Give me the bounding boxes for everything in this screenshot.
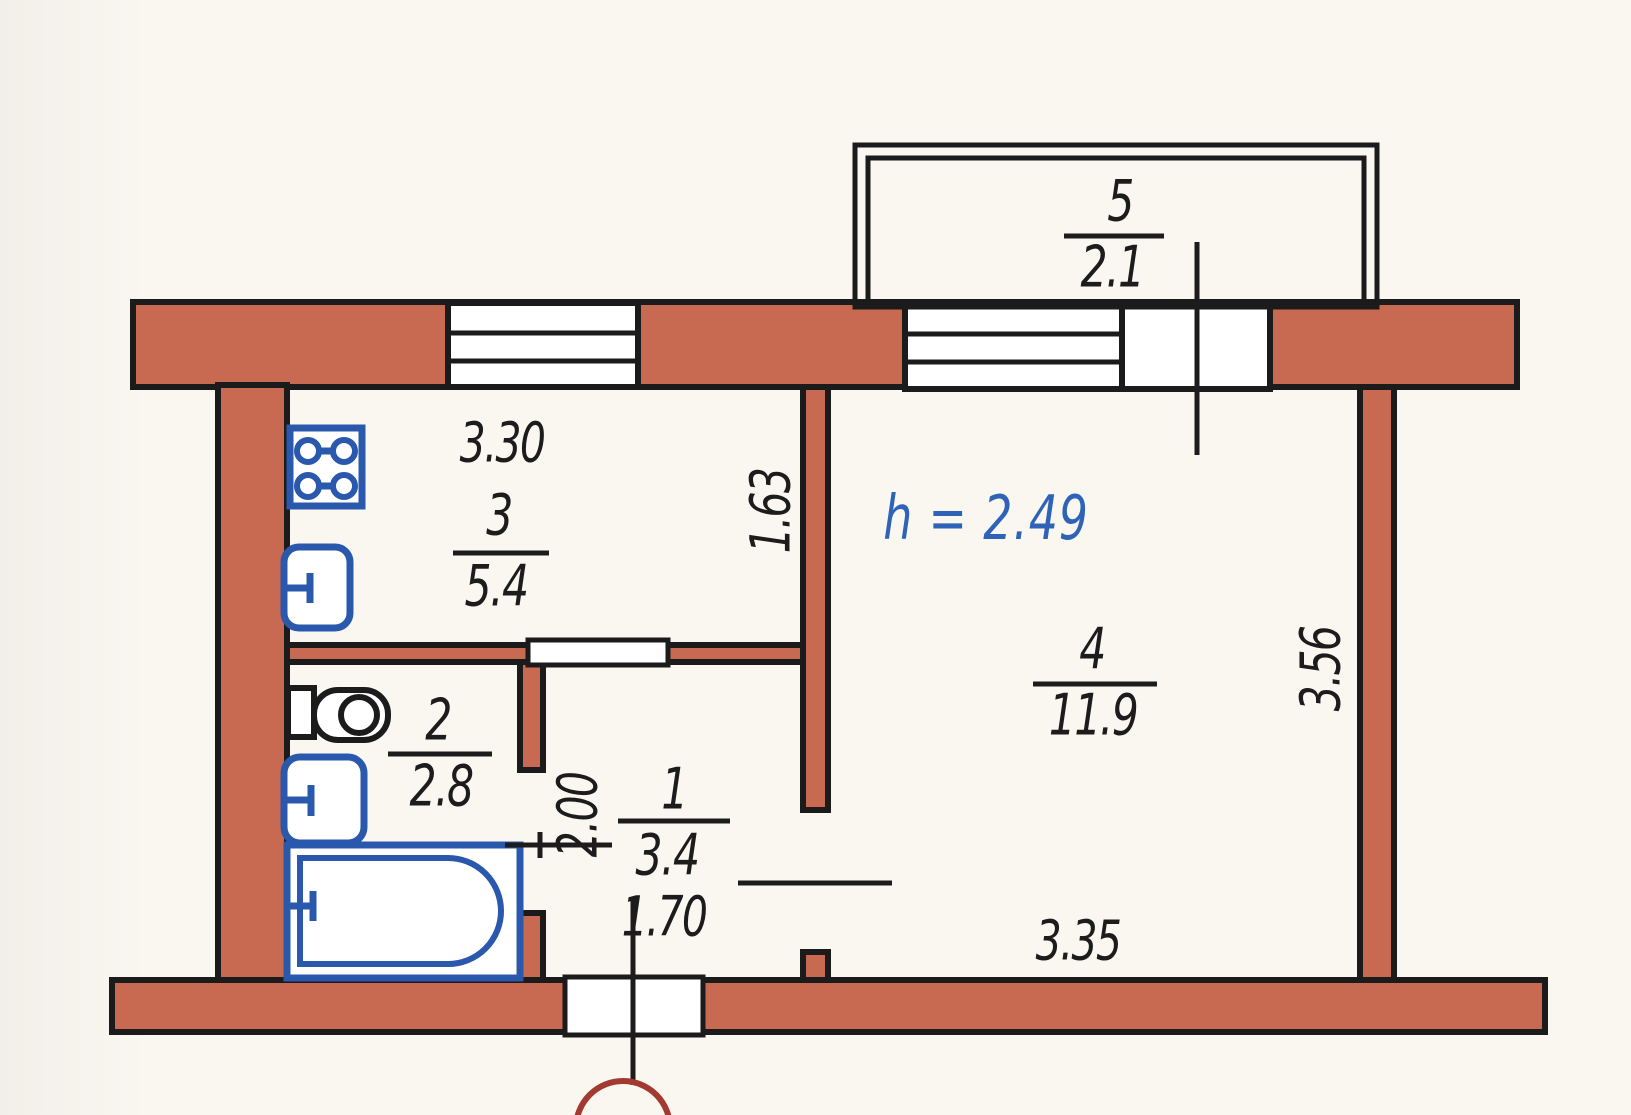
living-window xyxy=(905,305,1122,389)
bathroom-room-number: 2 xyxy=(425,692,450,749)
ceiling-height-note: h = 2.49 xyxy=(883,488,1089,550)
hallway-depth-dim: 2.00 xyxy=(551,773,606,858)
wall-bathroom-upper xyxy=(520,662,543,770)
openings xyxy=(448,303,1270,1035)
living-room-number: 4 xyxy=(1079,621,1104,678)
floor-plan-drawing xyxy=(0,0,1631,1115)
wall-bottom xyxy=(112,980,1545,1032)
balcony-room-area: 2.1 xyxy=(1081,239,1144,296)
kitchen-room-number: 3 xyxy=(486,487,511,544)
hallway-room-number: 1 xyxy=(661,761,686,818)
kitchen-door-opening xyxy=(528,640,668,665)
entry-door-mark-icon xyxy=(576,1081,670,1115)
stove-icon xyxy=(290,428,362,506)
bathtub-icon xyxy=(287,845,520,978)
kitchen-window xyxy=(448,303,638,387)
kitchen-sink-icon xyxy=(284,547,350,628)
kitchen-room-area: 5.4 xyxy=(465,558,528,615)
fixtures xyxy=(284,428,520,978)
hallway-width-dim: 1.70 xyxy=(622,890,707,945)
living-depth-dim: 3.56 xyxy=(1294,627,1349,712)
wall-living-upper xyxy=(803,387,828,810)
kitchen-width-dim: 3.30 xyxy=(460,416,545,471)
bathroom-room-area: 2.8 xyxy=(410,758,473,815)
bathroom-sink-icon xyxy=(284,757,364,843)
floor-plan-page: 5 2.1 3.30 3 5.4 1.63 h = 2.49 4 11.9 3.… xyxy=(0,0,1631,1115)
toilet-icon xyxy=(288,688,388,740)
hallway-room-area: 3.4 xyxy=(636,827,699,884)
kitchen-depth-dim: 1.63 xyxy=(744,469,799,554)
balcony-room-number: 5 xyxy=(1107,173,1132,230)
wall-left xyxy=(218,385,287,982)
wall-living-lower xyxy=(803,952,828,980)
living-width-dim: 3.35 xyxy=(1036,914,1121,969)
wall-top xyxy=(133,302,1517,387)
living-room-area: 11.9 xyxy=(1049,687,1137,744)
wall-right xyxy=(1360,387,1394,982)
